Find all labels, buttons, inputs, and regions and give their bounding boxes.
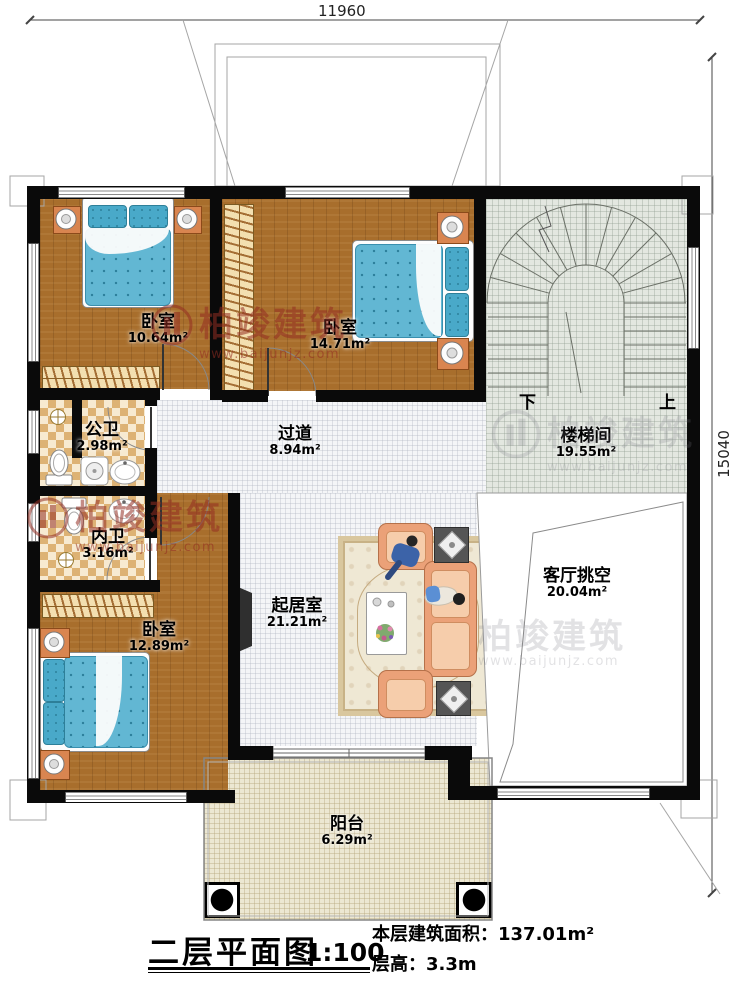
window-icon [58,187,185,198]
wall [228,493,240,760]
room-label-bedroom-bottom-left: 卧室12.89m² [129,622,189,654]
room-label-living-room: 起居室21.21m² [267,598,327,630]
wall [210,186,222,400]
void-outline [477,493,687,786]
armchair-icon [378,670,433,718]
room-label-public-bathroom: 公卫2.98m² [76,422,127,454]
wall [474,186,486,402]
floor-area-text: 本层建筑面积：137.01m² [372,920,594,946]
pillow-icon [445,247,469,291]
hallway-floor [157,400,486,493]
nightstand-icon [437,338,469,370]
title-underline [148,967,370,970]
column-icon [204,882,240,918]
room-label-ensuite-bathroom: 内卫3.16m² [82,529,133,561]
wall [448,758,470,788]
dimension-height: 15040 [715,430,733,478]
room-label-bedroom-top-left: 卧室10.64m² [128,314,188,346]
window-icon [497,788,650,798]
column-icon [456,882,492,918]
pillow-icon [88,205,127,228]
dimension-width: 11960 [318,2,366,20]
stairs-down-label: 下 [519,388,536,413]
nightstand-icon [53,206,81,234]
pillow-icon [43,702,65,745]
nightstand-icon [174,206,202,234]
watermark: 柏竣建筑 www.baijunjz.com [478,620,626,671]
window-icon [65,792,187,802]
wall [222,390,268,402]
window-icon [28,628,39,779]
wall [27,388,160,400]
floor-plan-canvas: 卧室10.64m² 卧室14.71m² 楼梯间19.55m² 过道8.94m² … [0,0,750,983]
side-table-icon [434,527,469,563]
wall [27,580,160,592]
room-label-stair-hall: 楼梯间19.55m² [556,428,616,460]
title-underline [148,972,370,973]
pillow-icon [43,659,65,702]
nightstand-icon [437,212,469,244]
figure-title: 二层平面图 [148,927,318,972]
wardrobe-icon [42,366,160,390]
room-label-bedroom-top-middle: 卧室14.71m² [310,320,370,352]
window-icon [285,187,410,198]
window-icon [28,410,39,454]
closet-icon [224,204,254,391]
wardrobe-icon [42,594,154,618]
pillow-icon [445,293,469,337]
side-table-icon [436,681,471,716]
window-icon [688,247,699,349]
stairs-up-label: 上 [659,388,676,413]
nightstand-icon [40,628,70,658]
window-icon [28,503,39,542]
window-icon [28,243,39,362]
wall [27,486,157,496]
wall [145,400,157,406]
coffee-table-icon [366,592,407,655]
wall [228,746,273,760]
bedroom-entry-nook-floor [157,493,228,593]
room-label-living-void: 客厅挑空20.04m² [543,568,611,600]
nightstand-icon [40,750,70,780]
sofa-icon [424,561,477,677]
floor-height-text: 层高：3.3m [372,950,477,976]
pillow-icon [129,205,168,228]
room-label-hallway: 过道8.94m² [269,426,320,458]
room-label-balcony: 阳台6.29m² [321,816,372,848]
wall [316,390,482,402]
armchair-icon [378,523,433,570]
